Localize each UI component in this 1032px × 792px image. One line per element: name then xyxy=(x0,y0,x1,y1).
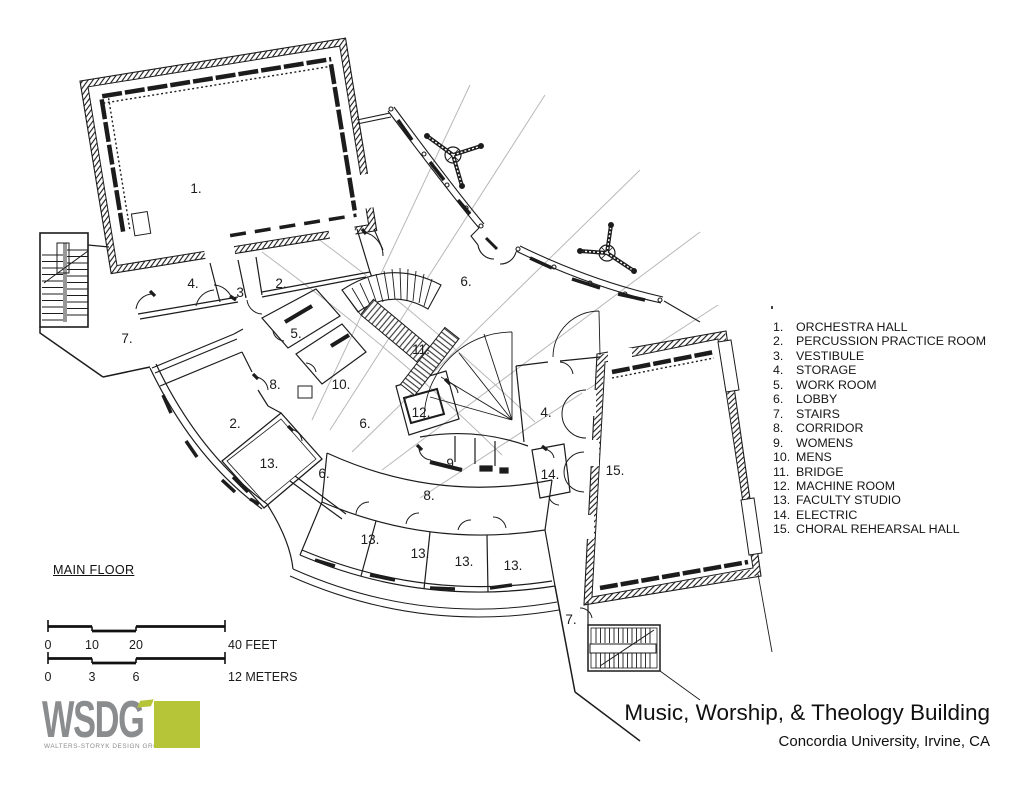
plan-text: 2. xyxy=(229,416,240,431)
plan-text: 0 xyxy=(45,638,52,652)
plan-text: 2. xyxy=(275,276,286,291)
legend-item-number: 11. xyxy=(773,465,796,479)
plan-text: 1. xyxy=(190,181,201,196)
legend-item-number: 14. xyxy=(773,508,796,522)
legend-item-number: 10. xyxy=(773,450,796,464)
plan-text: 13. xyxy=(361,532,380,547)
plan-text: 14. xyxy=(541,467,560,482)
column-symbol-2 xyxy=(578,223,637,274)
legend-item: 14.ELECTRIC xyxy=(773,508,986,522)
legend-item: 2.PERCUSSION PRACTICE ROOM xyxy=(773,334,986,348)
legend-item-name: VESTIBULE xyxy=(796,349,864,363)
legend-item: 6.LOBBY xyxy=(773,392,986,406)
percussion-lower-and-studio xyxy=(160,352,346,519)
orchestra-hall xyxy=(80,37,382,277)
plan-text: 13. xyxy=(504,558,523,573)
legend-item-number: 4. xyxy=(773,363,796,377)
glass-walls xyxy=(357,107,700,357)
legend-item-number: 6. xyxy=(773,392,796,406)
legend-item-number: 9. xyxy=(773,436,796,450)
legend-item: 3.VESTIBULE xyxy=(773,349,986,363)
plan-text: 7. xyxy=(565,612,576,627)
plan-text: 5. xyxy=(290,326,301,341)
column-symbol-1 xyxy=(425,134,484,189)
wsdg-logo-accent xyxy=(137,699,154,707)
legend-item-name: ORCHESTRA HALL xyxy=(796,320,908,334)
plan-text: 3. xyxy=(236,285,247,300)
legend-item: 10.MENS xyxy=(773,450,986,464)
legend-item: 11.BRIDGE xyxy=(773,465,986,479)
plan-text: 6. xyxy=(318,466,329,481)
plan-text: 7. xyxy=(121,331,132,346)
legend-item-number: 8. xyxy=(773,421,796,435)
plan-text: 0 xyxy=(45,670,52,684)
legend-item: 12.MACHINE ROOM xyxy=(773,479,986,493)
scale-meters-labels: 03612 METERS xyxy=(45,670,298,684)
legend-item: 13.FACULTY STUDIO xyxy=(773,493,986,507)
plan-text: 6. xyxy=(359,416,370,431)
plan-text: 10. xyxy=(332,377,351,392)
plan-text: 8. xyxy=(423,488,434,503)
plan-text: 4. xyxy=(540,405,551,420)
legend-item: 9.WOMENS xyxy=(773,436,986,450)
title-block: Music, Worship, & Theology Building Conc… xyxy=(624,700,990,750)
legend-item-name: CHORAL REHEARSAL HALL xyxy=(796,522,960,536)
project-title: Music, Worship, & Theology Building xyxy=(624,700,990,726)
plan-text: 13. xyxy=(260,456,279,471)
floor-plan-sheet: 0102040 FEET 03612 METERS 1.4.3.2.6.7.5.… xyxy=(0,0,1032,792)
legend-item-name: STORAGE xyxy=(796,363,856,377)
plan-text: 13. xyxy=(411,546,430,561)
wsdg-logo-word: WSDG xyxy=(42,697,143,743)
legend-item-name: STAIRS xyxy=(796,407,840,421)
scale-feet-labels: 0102040 FEET xyxy=(45,638,278,652)
legend-item-number: 13. xyxy=(773,493,796,507)
legend-item-name: WORK ROOM xyxy=(796,378,877,392)
legend-item: 5.WORK ROOM xyxy=(773,378,986,392)
legend-item: 1.ORCHESTRA HALL xyxy=(773,320,986,334)
floor-title: MAIN FLOOR xyxy=(53,563,134,577)
legend-item: 8.CORRIDOR xyxy=(773,421,986,435)
plan-text: 12 METERS xyxy=(228,670,297,684)
wsdg-logo-tagline: WALTERS-STORYK DESIGN GROUP xyxy=(44,743,169,750)
plan-text: 6. xyxy=(460,274,471,289)
legend-item-number: 2. xyxy=(773,334,796,348)
plan-text: 8. xyxy=(269,377,280,392)
plan-text: 40 FEET xyxy=(228,638,278,652)
plan-text: 13. xyxy=(455,554,474,569)
plan-text: 12. xyxy=(412,405,431,420)
wsdg-logo-square xyxy=(154,701,200,748)
legend-item-number: 1. xyxy=(773,320,796,334)
legend-item-name: MENS xyxy=(796,450,832,464)
plan-text: 4. xyxy=(187,276,198,291)
room-legend: 1.ORCHESTRA HALL2.PERCUSSION PRACTICE RO… xyxy=(773,320,986,537)
plan-text: 6 xyxy=(133,670,140,684)
legend-item: 15.CHORAL REHEARSAL HALL xyxy=(773,522,986,536)
legend-item-name: ELECTRIC xyxy=(796,508,857,522)
legend-item-number: 5. xyxy=(773,378,796,392)
plan-text: 3 xyxy=(89,670,96,684)
legend-item-name: LOBBY xyxy=(796,392,837,406)
plan-text: 11. xyxy=(412,342,430,357)
plan-text: 10 xyxy=(85,638,99,652)
legend-item-name: CORRIDOR xyxy=(796,421,863,435)
legend-item-name: FACULTY STUDIO xyxy=(796,493,901,507)
legend-item-name: PERCUSSION PRACTICE ROOM xyxy=(796,334,986,348)
plan-text: 15. xyxy=(606,463,625,478)
legend-item-name: WOMENS xyxy=(796,436,853,450)
legend-item-number: 7. xyxy=(773,407,796,421)
plan-text: 20 xyxy=(129,638,143,652)
legend-item-number: 12. xyxy=(773,479,796,493)
legend-item-name: BRIDGE xyxy=(796,465,844,479)
legend-item-number: 15. xyxy=(773,522,796,536)
legend-item-number: 3. xyxy=(773,349,796,363)
legend-item-name: MACHINE ROOM xyxy=(796,479,895,493)
legend-item: 4.STORAGE xyxy=(773,363,986,377)
legend-tick-mark xyxy=(771,306,773,309)
plan-text: 9. xyxy=(446,456,457,471)
project-subtitle: Concordia University, Irvine, CA xyxy=(624,733,990,750)
legend-item: 7.STAIRS xyxy=(773,407,986,421)
